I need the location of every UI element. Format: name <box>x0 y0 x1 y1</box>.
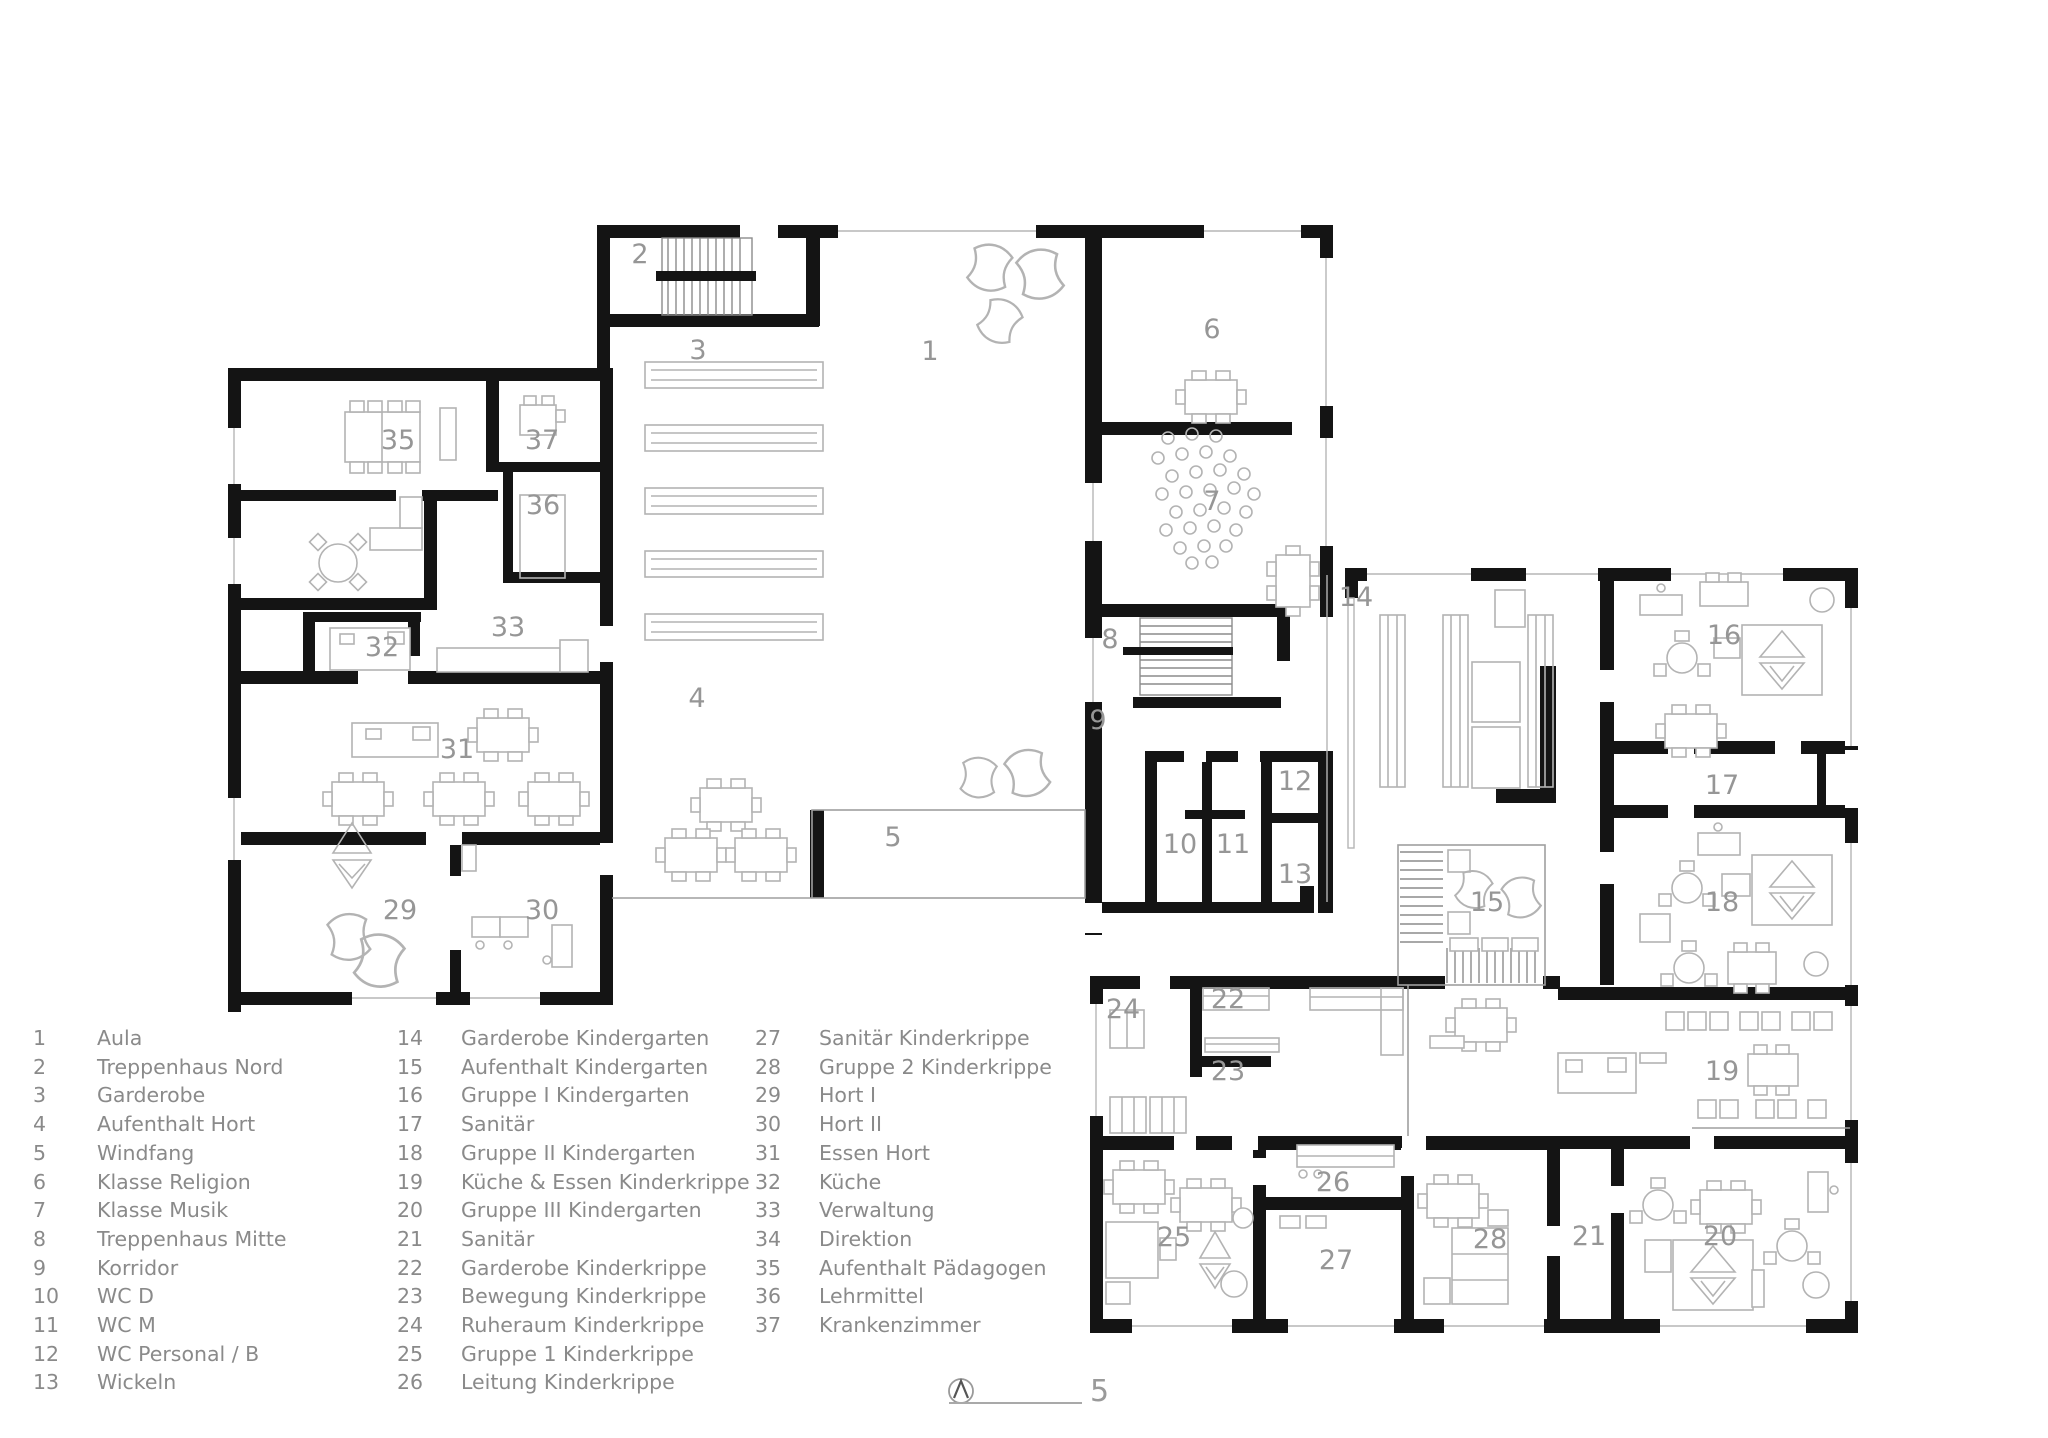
legend-item-label: Hort II <box>819 1110 882 1139</box>
legend-item-4: 4Aufenthalt Hort <box>33 1110 287 1139</box>
legend-item-label: Essen Hort <box>819 1139 930 1168</box>
stairs-north <box>656 238 756 315</box>
room-label-11: 11 <box>1216 829 1250 860</box>
legend-item-number: 30 <box>755 1110 819 1139</box>
legend-item-2: 2Treppenhaus Nord <box>33 1053 287 1082</box>
legend-item-5: 5Windfang <box>33 1139 287 1168</box>
legend-item-10: 10WC D <box>33 1282 287 1311</box>
legend-item-19: 19Küche & Essen Kinderkrippe <box>397 1168 750 1197</box>
legend-item-3: 3Garderobe <box>33 1081 287 1110</box>
legend-item-number: 37 <box>755 1311 819 1340</box>
legend-item-label: Leitung Kinderkrippe <box>461 1368 675 1397</box>
room-label-29: 29 <box>383 895 417 926</box>
legend-item-8: 8Treppenhaus Mitte <box>33 1225 287 1254</box>
room-label-20: 20 <box>1703 1221 1737 1252</box>
legend-item-number: 6 <box>33 1168 97 1197</box>
legend-item-label: WC D <box>97 1282 154 1311</box>
legend-item-label: Krankenzimmer <box>819 1311 981 1340</box>
legend-item-number: 4 <box>33 1110 97 1139</box>
room-label-35: 35 <box>381 425 415 456</box>
north-arrow <box>949 1379 973 1403</box>
legend-item-number: 16 <box>397 1081 461 1110</box>
scale-label: 5 <box>1090 1374 1109 1409</box>
legend-item-number: 28 <box>755 1053 819 1082</box>
legend-item-label: Aufenthalt Pädagogen <box>819 1254 1046 1283</box>
legend-item-21: 21Sanitär <box>397 1225 750 1254</box>
legend-item-number: 29 <box>755 1081 819 1110</box>
legend-item-label: Wickeln <box>97 1368 176 1397</box>
legend-item-label: WC Personal / B <box>97 1340 259 1369</box>
legend-item-label: Küche & Essen Kinderkrippe <box>461 1168 750 1197</box>
room-label-19: 19 <box>1705 1056 1739 1087</box>
stairs-middle <box>1123 618 1233 695</box>
legend-item-17: 17Sanitär <box>397 1110 750 1139</box>
room-label-15: 15 <box>1470 887 1504 918</box>
legend-item-number: 7 <box>33 1196 97 1225</box>
legend-item-label: Ruheraum Kinderkrippe <box>461 1311 704 1340</box>
legend-item-1: 1Aula <box>33 1024 287 1053</box>
room-label-30: 30 <box>525 895 559 926</box>
legend-item-number: 13 <box>33 1368 97 1397</box>
legend-item-25: 25Gruppe 1 Kinderkrippe <box>397 1340 750 1369</box>
legend-column-1: 1Aula2Treppenhaus Nord3Garderobe4Aufenth… <box>33 1024 287 1397</box>
legend-item-number: 5 <box>33 1139 97 1168</box>
legend-item-number: 17 <box>397 1110 461 1139</box>
legend-item-31: 31Essen Hort <box>755 1139 1052 1168</box>
room-label-4: 4 <box>688 683 705 714</box>
legend-item-label: WC M <box>97 1311 156 1340</box>
room-label-27: 27 <box>1319 1245 1353 1276</box>
legend-item-number: 21 <box>397 1225 461 1254</box>
legend-item-label: Direktion <box>819 1225 912 1254</box>
legend-item-18: 18Gruppe II Kindergarten <box>397 1139 750 1168</box>
legend-item-label: Korridor <box>97 1254 178 1283</box>
legend-item-number: 33 <box>755 1196 819 1225</box>
legend-item-number: 8 <box>33 1225 97 1254</box>
legend-item-number: 1 <box>33 1024 97 1053</box>
legend-item-13: 13Wickeln <box>33 1368 287 1397</box>
legend-item-label: Gruppe I Kindergarten <box>461 1081 690 1110</box>
legend-item-26: 26Leitung Kinderkrippe <box>397 1368 750 1397</box>
legend-item-number: 24 <box>397 1311 461 1340</box>
legend-item-number: 36 <box>755 1282 819 1311</box>
legend-column-2: 14Garderobe Kindergarten15Aufenthalt Kin… <box>397 1024 750 1397</box>
legend-item-24: 24Ruheraum Kinderkrippe <box>397 1311 750 1340</box>
room-label-37: 37 <box>525 425 559 456</box>
legend-item-36: 36Lehrmittel <box>755 1282 1052 1311</box>
legend-item-label: Garderobe Kinderkrippe <box>461 1254 707 1283</box>
legend-item-6: 6Klasse Religion <box>33 1168 287 1197</box>
room-label-23: 23 <box>1211 1056 1245 1087</box>
legend-item-number: 3 <box>33 1081 97 1110</box>
legend-item-number: 12 <box>33 1340 97 1369</box>
legend-item-number: 32 <box>755 1168 819 1197</box>
legend-item-20: 20Gruppe III Kindergarten <box>397 1196 750 1225</box>
legend-item-label: Bewegung Kinderkrippe <box>461 1282 706 1311</box>
room-label-1: 1 <box>921 336 938 367</box>
legend-item-label: Gruppe III Kindergarten <box>461 1196 702 1225</box>
room-label-24: 24 <box>1106 994 1140 1025</box>
room-label-13: 13 <box>1278 859 1312 890</box>
legend-item-number: 26 <box>397 1368 461 1397</box>
room-label-16: 16 <box>1707 620 1741 651</box>
legend-item-number: 25 <box>397 1340 461 1369</box>
legend-item-label: Gruppe 1 Kinderkrippe <box>461 1340 694 1369</box>
legend-item-number: 11 <box>33 1311 97 1340</box>
legend-item-11: 11WC M <box>33 1311 287 1340</box>
legend-item-label: Gruppe II Kindergarten <box>461 1139 696 1168</box>
room-label-2: 2 <box>631 239 648 270</box>
room-label-31: 31 <box>440 734 474 765</box>
floor-plan-page: 1234567891011121314151617181920212223242… <box>0 0 2048 1438</box>
legend-item-number: 34 <box>755 1225 819 1254</box>
legend-item-37: 37Krankenzimmer <box>755 1311 1052 1340</box>
legend-column-3: 27Sanitär Kinderkrippe28Gruppe 2 Kinderk… <box>755 1024 1052 1340</box>
legend-item-number: 9 <box>33 1254 97 1283</box>
legend-item-label: Garderobe <box>97 1081 205 1110</box>
legend-item-number: 14 <box>397 1024 461 1053</box>
room-label-6: 6 <box>1203 314 1220 345</box>
legend-item-number: 2 <box>33 1053 97 1082</box>
legend-item-9: 9Korridor <box>33 1254 287 1283</box>
legend-item-label: Gruppe 2 Kinderkrippe <box>819 1053 1052 1082</box>
legend-item-number: 19 <box>397 1168 461 1197</box>
legend-item-number: 20 <box>397 1196 461 1225</box>
legend-item-label: Aufenthalt Hort <box>97 1110 255 1139</box>
room-label-26: 26 <box>1316 1167 1350 1198</box>
legend-item-22: 22Garderobe Kinderkrippe <box>397 1254 750 1283</box>
legend-item-27: 27Sanitär Kinderkrippe <box>755 1024 1052 1053</box>
legend-item-15: 15Aufenthalt Kindergarten <box>397 1053 750 1082</box>
legend-item-30: 30Hort II <box>755 1110 1052 1139</box>
room-label-21: 21 <box>1572 1221 1606 1252</box>
legend-item-14: 14Garderobe Kindergarten <box>397 1024 750 1053</box>
room-label-17: 17 <box>1705 770 1739 801</box>
legend-item-label: Treppenhaus Nord <box>97 1053 283 1082</box>
legend-item-32: 32Küche <box>755 1168 1052 1197</box>
room-label-5: 5 <box>884 822 901 853</box>
legend-item-label: Hort I <box>819 1081 876 1110</box>
legend-item-label: Lehrmittel <box>819 1282 924 1311</box>
legend-item-label: Verwaltung <box>819 1196 935 1225</box>
legend-item-number: 10 <box>33 1282 97 1311</box>
room-label-12: 12 <box>1278 766 1312 797</box>
room-label-3: 3 <box>689 335 706 366</box>
legend-item-number: 18 <box>397 1139 461 1168</box>
legend-item-35: 35Aufenthalt Pädagogen <box>755 1254 1052 1283</box>
legend-item-label: Treppenhaus Mitte <box>97 1225 287 1254</box>
legend-item-label: Klasse Religion <box>97 1168 251 1197</box>
legend-item-34: 34Direktion <box>755 1225 1052 1254</box>
legend-item-number: 23 <box>397 1282 461 1311</box>
legend-item-label: Sanitär Kinderkrippe <box>819 1024 1030 1053</box>
legend-item-number: 27 <box>755 1024 819 1053</box>
legend-item-number: 22 <box>397 1254 461 1283</box>
legend-item-16: 16Gruppe I Kindergarten <box>397 1081 750 1110</box>
legend-item-label: Garderobe Kindergarten <box>461 1024 709 1053</box>
legend-item-number: 15 <box>397 1053 461 1082</box>
room-label-22: 22 <box>1211 984 1245 1015</box>
room-label-33: 33 <box>491 612 525 643</box>
legend-item-28: 28Gruppe 2 Kinderkrippe <box>755 1053 1052 1082</box>
legend-item-23: 23Bewegung Kinderkrippe <box>397 1282 750 1311</box>
legend-item-29: 29Hort I <box>755 1081 1052 1110</box>
room-label-10: 10 <box>1163 829 1197 860</box>
room-label-14: 14 <box>1339 582 1373 613</box>
room-label-36: 36 <box>526 490 560 521</box>
legend-item-label: Küche <box>819 1168 881 1197</box>
legend-item-label: Aula <box>97 1024 142 1053</box>
room-label-25: 25 <box>1157 1222 1191 1253</box>
legend-item-label: Sanitär <box>461 1110 534 1139</box>
legend-item-label: Klasse Musik <box>97 1196 228 1225</box>
legend-item-12: 12WC Personal / B <box>33 1340 287 1369</box>
legend-item-label: Windfang <box>97 1139 194 1168</box>
room-label-18: 18 <box>1705 887 1739 918</box>
legend-item-label: Sanitär <box>461 1225 534 1254</box>
legend-item-7: 7Klasse Musik <box>33 1196 287 1225</box>
legend-item-number: 35 <box>755 1254 819 1283</box>
legend-item-label: Aufenthalt Kindergarten <box>461 1053 708 1082</box>
legend-item-33: 33Verwaltung <box>755 1196 1052 1225</box>
legend-item-number: 31 <box>755 1139 819 1168</box>
room-label-32: 32 <box>365 632 399 663</box>
room-label-8: 8 <box>1101 624 1118 655</box>
room-label-9: 9 <box>1089 705 1106 736</box>
room-label-28: 28 <box>1473 1224 1507 1255</box>
room-label-7: 7 <box>1203 486 1220 517</box>
